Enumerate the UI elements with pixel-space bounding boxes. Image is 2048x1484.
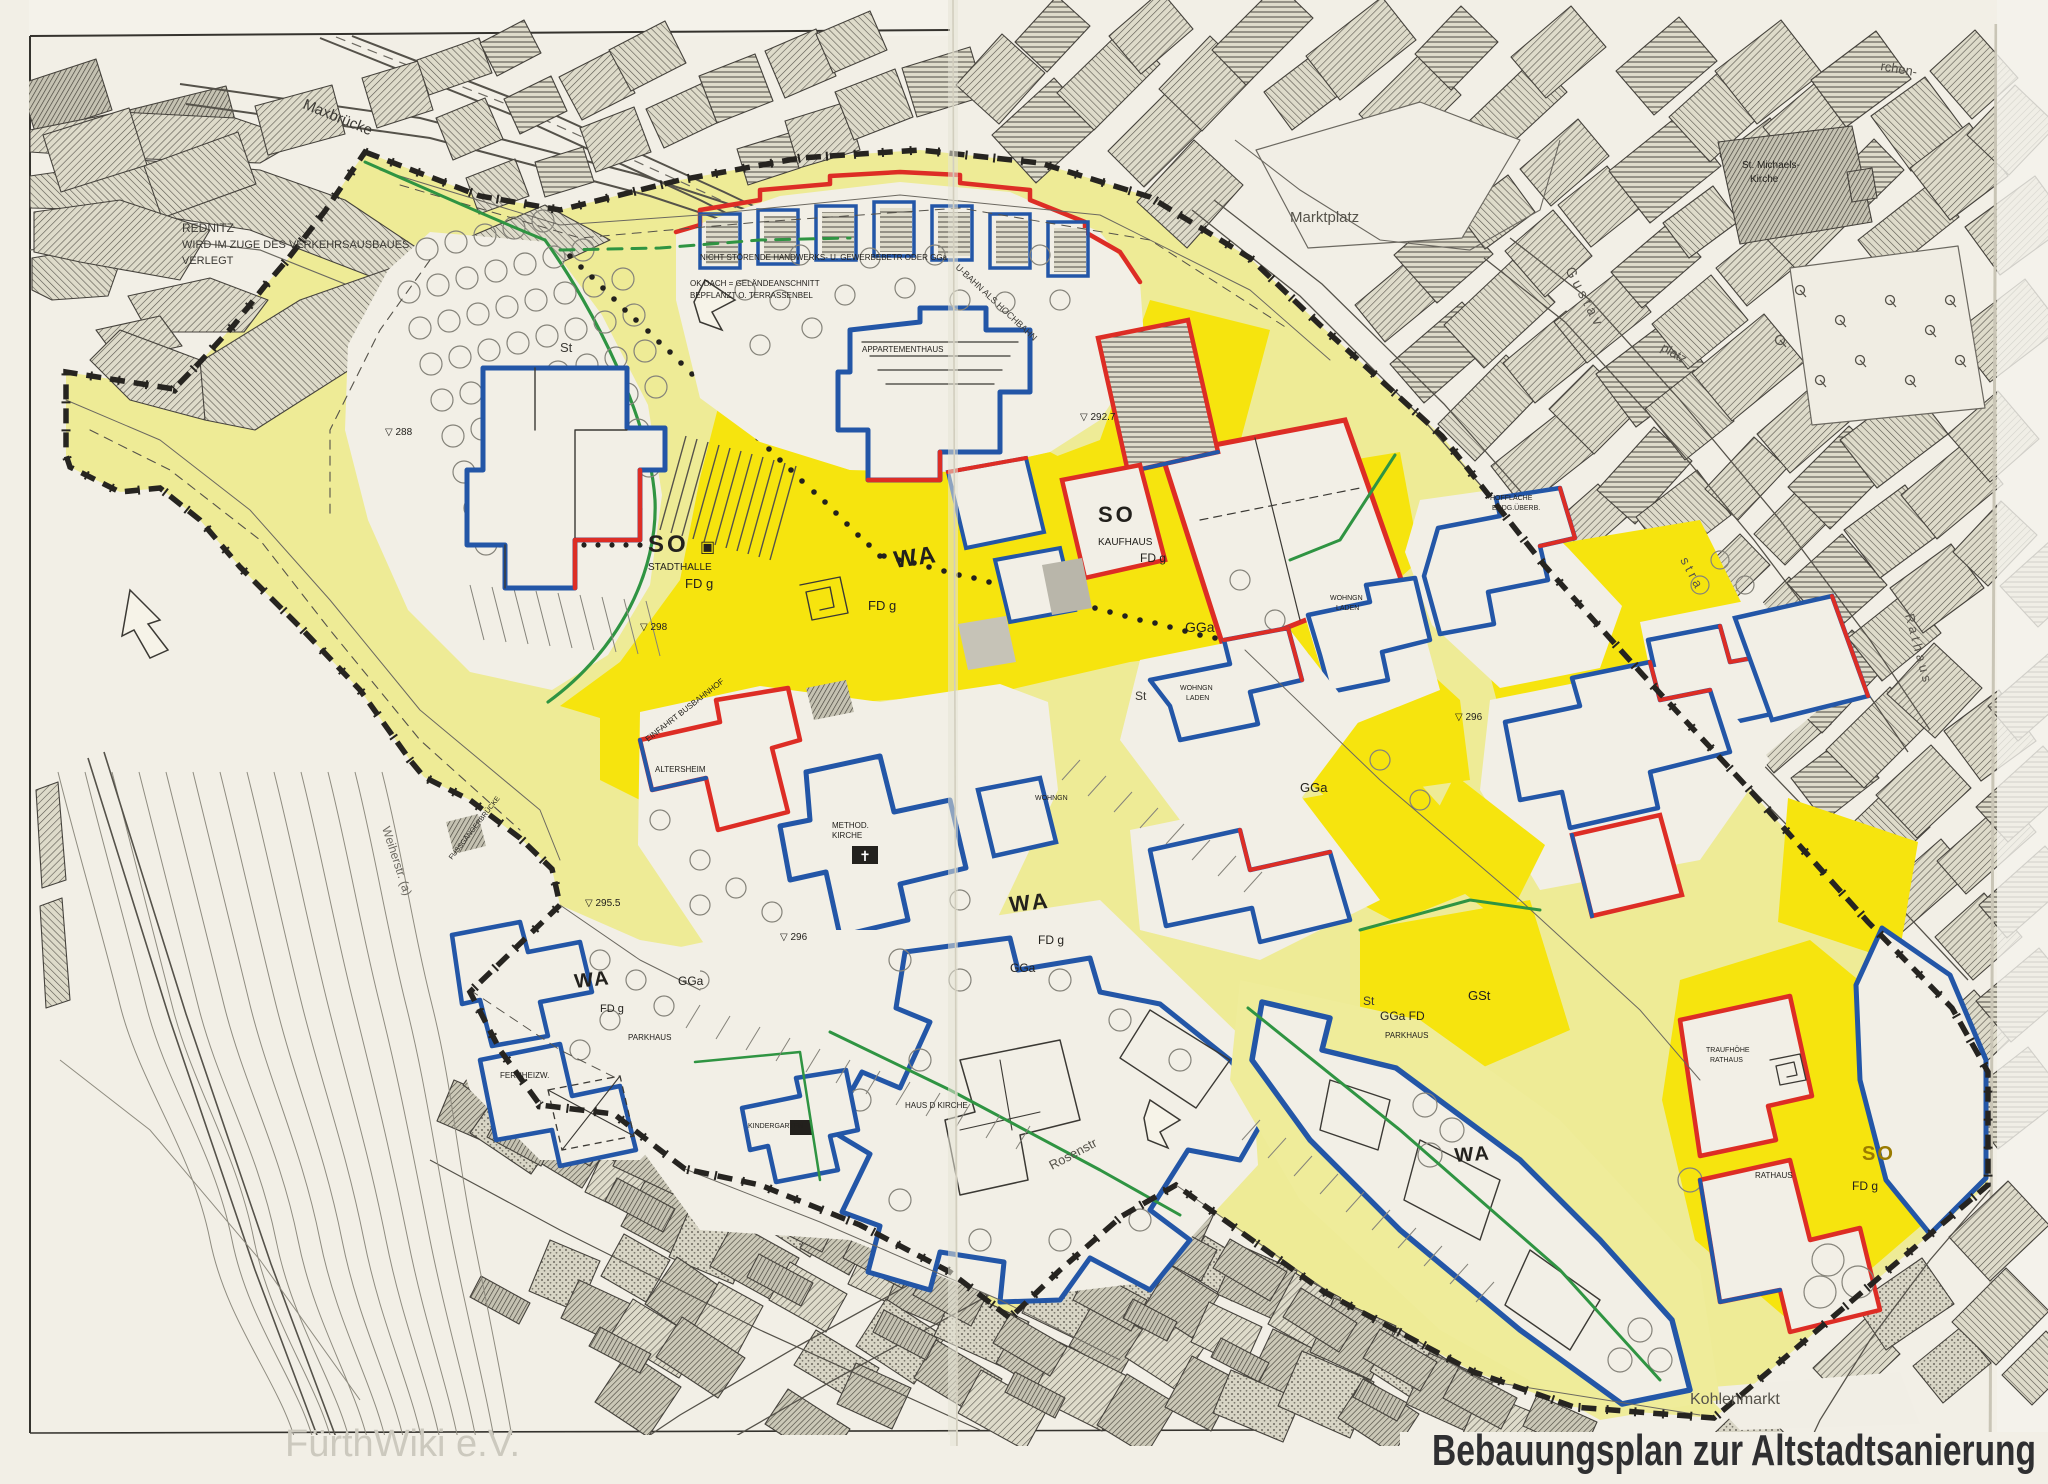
svg-text:▽ 295.5: ▽ 295.5	[585, 898, 621, 909]
svg-text:▽ 292.7: ▽ 292.7	[1080, 412, 1116, 423]
svg-text:VERLEGT: VERLEGT	[182, 255, 234, 267]
svg-text:FD g: FD g	[600, 1003, 624, 1015]
svg-text:GGa: GGa	[1010, 961, 1036, 975]
svg-text:St: St	[1363, 994, 1375, 1008]
svg-text:▽ 296: ▽ 296	[1455, 712, 1483, 723]
svg-text:▣: ▣	[700, 539, 715, 556]
svg-text:METHOD.: METHOD.	[832, 821, 869, 830]
svg-text:SO: SO	[648, 531, 689, 558]
svg-text:LADEN: LADEN	[1336, 605, 1359, 612]
svg-text:Kohlenmarkt: Kohlenmarkt	[1690, 1391, 1780, 1408]
svg-text:WOHNGN: WOHNGN	[1035, 795, 1068, 802]
svg-text:FürthWiki e.V.: FürthWiki e.V.	[285, 1423, 520, 1465]
svg-text:REDNITZ: REDNITZ	[182, 221, 234, 235]
svg-text:▽ 296: ▽ 296	[780, 932, 808, 943]
svg-text:FERNHEIZW.: FERNHEIZW.	[500, 1071, 549, 1080]
svg-text:ALTERSHEIM: ALTERSHEIM	[655, 765, 706, 774]
svg-text:FD g: FD g	[1140, 551, 1166, 565]
svg-text:RATHAUS: RATHAUS	[1755, 1171, 1793, 1180]
svg-text:WA: WA	[573, 967, 611, 993]
svg-text:BEPFLANZT O. TERRASSENBEL: BEPFLANZT O. TERRASSENBEL	[690, 291, 813, 300]
svg-text:KAUFHAUS: KAUFHAUS	[1098, 537, 1153, 548]
svg-text:RATHAUS: RATHAUS	[1710, 1057, 1743, 1064]
svg-text:SO: SO	[1862, 1143, 1895, 1165]
svg-text:PARKHAUS: PARKHAUS	[628, 1033, 671, 1042]
svg-text:TRAUFHÖHE: TRAUFHÖHE	[1706, 1046, 1750, 1054]
svg-text:APPARTEMENTHAUS: APPARTEMENTHAUS	[862, 345, 944, 354]
svg-text:KINDERGARTEN: KINDERGARTEN	[748, 1123, 804, 1130]
svg-text:WA: WA	[1454, 1143, 1492, 1167]
svg-text:HAUS D KIRCHE: HAUS D KIRCHE	[905, 1101, 968, 1110]
svg-text:WIRD IM ZUGE DES VERKEHRSAUSBA: WIRD IM ZUGE DES VERKEHRSAUSBAUES	[182, 239, 409, 251]
svg-text:▽ 288: ▽ 288	[385, 427, 413, 438]
svg-text:FD g: FD g	[1038, 933, 1064, 947]
svg-text:FD g: FD g	[868, 598, 896, 613]
svg-text:GGa FD: GGa FD	[1380, 1009, 1425, 1023]
svg-text:GGa: GGa	[678, 974, 704, 988]
svg-text:FD g: FD g	[685, 576, 713, 591]
svg-text:ERDG.ÜBERB.: ERDG.ÜBERB.	[1492, 504, 1540, 512]
svg-text:PARKHAUS: PARKHAUS	[1385, 1031, 1428, 1040]
svg-text:▽ 298: ▽ 298	[640, 622, 668, 633]
svg-text:SO: SO	[1098, 502, 1136, 527]
svg-text:GGa: GGa	[1300, 780, 1328, 795]
svg-text:LADEN: LADEN	[1186, 695, 1209, 702]
svg-text:STADTHALLE: STADTHALLE	[648, 562, 712, 573]
svg-text:WOHNGN: WOHNGN	[1330, 595, 1363, 602]
svg-text:Kirche: Kirche	[1750, 174, 1779, 185]
svg-text:St: St	[1135, 689, 1147, 703]
svg-text:St. Michaels-: St. Michaels-	[1742, 160, 1800, 171]
svg-text:FD g: FD g	[1852, 1179, 1878, 1193]
svg-text:GSt: GSt	[1468, 988, 1491, 1003]
svg-text:NICHT STÖRENDE HANDWERKS- U. G: NICHT STÖRENDE HANDWERKS- U. GEWERBEBETR…	[700, 253, 948, 262]
svg-text:GGa: GGa	[1185, 619, 1215, 635]
svg-text:WOHNGN: WOHNGN	[1180, 685, 1213, 692]
svg-text:St: St	[560, 340, 573, 355]
svg-text:OK DACH = GELÄNDEANSCHNITT: OK DACH = GELÄNDEANSCHNITT	[690, 279, 820, 288]
svg-text:HOFFLÄCHE: HOFFLÄCHE	[1490, 494, 1533, 502]
svg-text:Marktplatz: Marktplatz	[1290, 209, 1359, 226]
svg-text:✝: ✝	[859, 848, 871, 864]
svg-text:WA: WA	[1008, 888, 1052, 917]
svg-text:Bebauungsplan zur Altstadtsani: Bebauungsplan zur Altstadtsanierung	[1432, 1426, 2036, 1475]
svg-text:KIRCHE: KIRCHE	[832, 831, 862, 840]
